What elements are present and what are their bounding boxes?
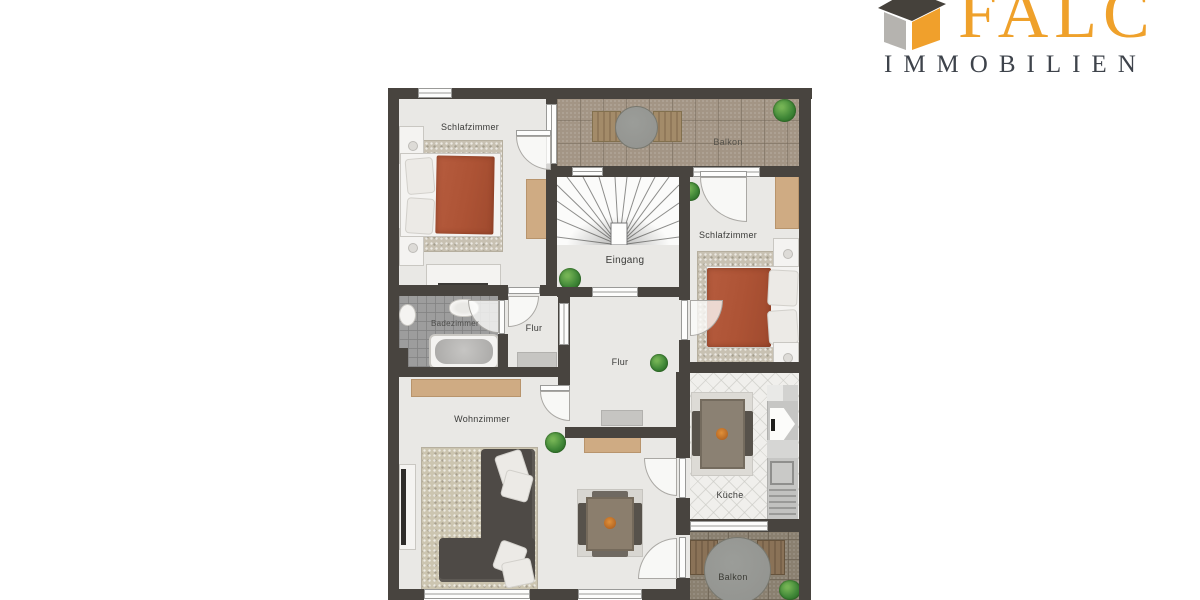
house-left-face [884, 12, 906, 50]
desk [526, 179, 547, 239]
wall [679, 166, 690, 372]
door-leaf [508, 287, 540, 294]
bathtub-basin [435, 339, 493, 364]
desk [775, 171, 799, 229]
window [418, 88, 452, 98]
counter-block [783, 385, 798, 401]
wall [388, 589, 424, 600]
wall [388, 348, 408, 370]
sink-faucet [771, 419, 775, 431]
nightstand [773, 238, 799, 268]
door-leaf [681, 300, 688, 340]
bed-pillow [404, 157, 435, 195]
room-label-kitchen: Küche [702, 490, 758, 500]
wall [565, 427, 690, 438]
hall-dresser [601, 410, 643, 426]
winder-staircase [557, 177, 679, 245]
room-label-bathroom: Badezimmer [419, 319, 491, 328]
plant-icon [545, 432, 566, 453]
table-bowl [716, 428, 728, 440]
room-label-bedroom-top: Schlafzimmer [424, 122, 516, 132]
wall [388, 88, 399, 600]
tv [401, 469, 406, 545]
hall-bench [517, 352, 557, 368]
plant-icon [650, 354, 668, 372]
room-label-hall-small: Flur [513, 323, 555, 333]
plant-icon [779, 580, 801, 600]
bed-pillow [767, 309, 799, 345]
glazed-panel [559, 303, 569, 345]
bed-pillow [767, 269, 799, 307]
entrance-door [592, 287, 638, 297]
knob [408, 141, 418, 151]
wall [388, 367, 570, 377]
counter-block [767, 385, 783, 401]
falc-house-icon [878, 0, 948, 50]
knob [783, 249, 793, 259]
plant-icon [773, 99, 796, 122]
door-leaf [679, 537, 686, 578]
balcony-round-table [615, 106, 658, 149]
bed-blanket [435, 155, 494, 234]
counter-block [767, 440, 798, 458]
window [690, 521, 768, 531]
room-label-living-room: Wohnzimmer [435, 414, 529, 424]
door-leaf [679, 458, 686, 498]
room-label-bedroom-right: Schlafzimmer [682, 230, 774, 240]
wall [642, 589, 689, 600]
window [572, 167, 603, 176]
room-label-entrance: Eingang [592, 255, 658, 266]
door-leaf [499, 300, 505, 334]
room-label-balcony-bottom: Balkon [705, 572, 761, 582]
floorplan-page: Schlafzimmer Balkon Schlafzimmer Eingang… [0, 0, 1200, 600]
logo-brand-text: FALC [958, 0, 1156, 50]
wall [530, 589, 578, 600]
stove [770, 461, 794, 485]
knob [408, 243, 418, 253]
wall [679, 362, 811, 373]
balcony-round-table [704, 537, 771, 600]
bed-pillow [405, 197, 435, 235]
sideboard [411, 379, 521, 397]
room-label-hall-main: Flur [598, 357, 642, 367]
window [578, 589, 642, 599]
room-label-balcony-top: Balkon [700, 137, 756, 147]
toilet [399, 304, 416, 326]
table-bowl [604, 517, 616, 529]
window [424, 589, 530, 599]
logo-subtitle-text: IMMOBILIEN [884, 52, 1147, 77]
dishwasher [769, 489, 796, 515]
